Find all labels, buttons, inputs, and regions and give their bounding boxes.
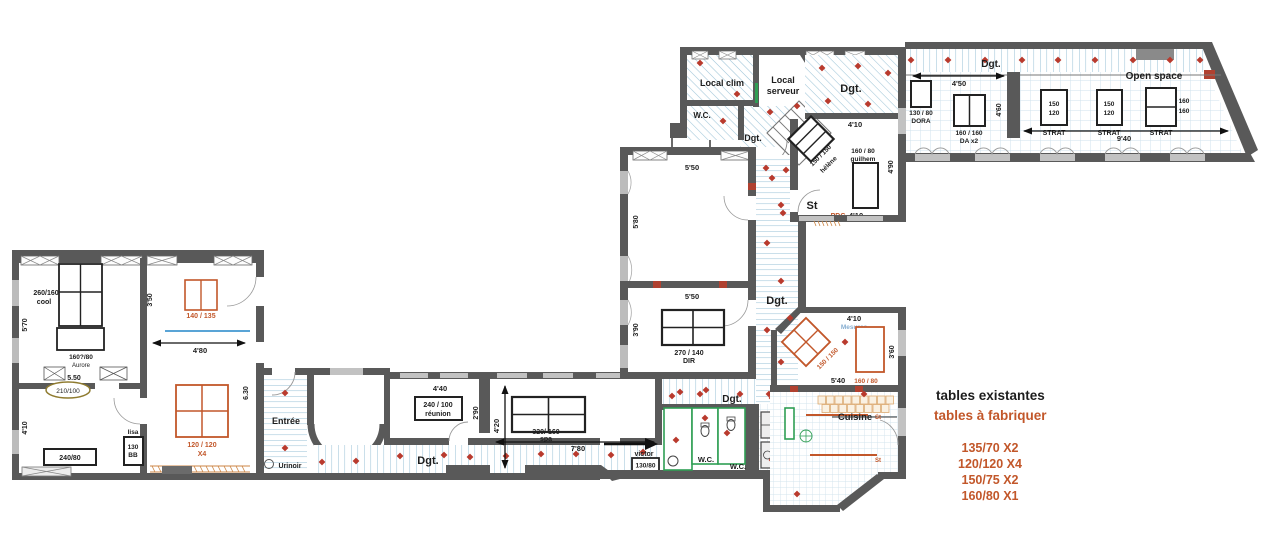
svg-text:tables existantes: tables existantes — [936, 388, 1045, 403]
svg-text:réunion: réunion — [425, 411, 451, 418]
svg-text:5.50: 5.50 — [67, 375, 81, 382]
svg-text:3'60: 3'60 — [889, 345, 896, 358]
svg-text:St: St — [807, 200, 818, 212]
svg-text:4'10: 4'10 — [847, 314, 861, 323]
svg-text:160: 160 — [1179, 108, 1190, 115]
svg-text:5'40: 5'40 — [831, 376, 845, 385]
svg-text:Dgt.: Dgt. — [840, 83, 861, 95]
svg-text:Dgt.: Dgt. — [417, 455, 438, 467]
svg-text:150: 150 — [1104, 101, 1115, 108]
svg-text:DIR: DIR — [683, 358, 695, 365]
svg-text:4'90: 4'90 — [888, 160, 895, 173]
svg-text:BB: BB — [128, 452, 138, 459]
svg-text:DORA: DORA — [911, 118, 930, 125]
svg-text:guilhem: guilhem — [851, 156, 876, 163]
svg-text:4'60: 4'60 — [996, 103, 1003, 116]
svg-text:5'70: 5'70 — [22, 318, 29, 331]
svg-text:5'50: 5'50 — [685, 163, 699, 172]
svg-text:160 / 80: 160 / 80 — [854, 378, 878, 385]
svg-text:St: St — [875, 458, 881, 464]
svg-text:Open space: Open space — [1126, 71, 1183, 82]
svg-text:210/100: 210/100 — [56, 388, 80, 395]
svg-text:160?/80: 160?/80 — [69, 354, 93, 361]
svg-text:3'90: 3'90 — [633, 323, 640, 336]
svg-text:Dgt.: Dgt. — [981, 59, 1001, 70]
svg-text:160: 160 — [1179, 98, 1190, 105]
svg-text:4'40: 4'40 — [433, 384, 447, 393]
svg-text:160/80 X1: 160/80 X1 — [962, 489, 1019, 503]
svg-text:serveur: serveur — [767, 86, 800, 96]
svg-text:160 / 80: 160 / 80 — [851, 148, 875, 155]
svg-text:Local clim: Local clim — [700, 78, 744, 88]
svg-text:4'20: 4'20 — [492, 419, 501, 433]
svg-text:5'50: 5'50 — [685, 292, 699, 301]
svg-text:Urinoir: Urinoir — [279, 463, 302, 470]
svg-text:240/80: 240/80 — [59, 455, 81, 462]
svg-text:120: 120 — [1049, 110, 1060, 117]
svg-text:5'80: 5'80 — [633, 215, 640, 228]
svg-text:DA x2: DA x2 — [960, 138, 979, 145]
svg-text:victor: victor — [634, 451, 653, 458]
svg-text:Local: Local — [771, 75, 795, 85]
svg-text:240 / 100: 240 / 100 — [423, 402, 452, 409]
svg-text:130/80: 130/80 — [636, 463, 656, 470]
svg-text:150: 150 — [1049, 101, 1060, 108]
svg-text:9'40: 9'40 — [1117, 134, 1131, 143]
svg-text:4'80: 4'80 — [193, 346, 207, 355]
svg-text:Dgt.: Dgt. — [766, 295, 787, 307]
svg-text:120 / 120: 120 / 120 — [187, 442, 216, 449]
svg-text:X4: X4 — [198, 451, 207, 458]
svg-text:3'50: 3'50 — [147, 293, 154, 306]
svg-text:W.C.: W.C. — [730, 462, 746, 471]
svg-text:6.30: 6.30 — [243, 386, 250, 400]
svg-text:2'90: 2'90 — [473, 406, 480, 419]
svg-text:320/ 160: 320/ 160 — [532, 429, 559, 436]
svg-text:4'10: 4'10 — [848, 120, 862, 129]
svg-text:140 / 135: 140 / 135 — [186, 313, 215, 320]
svg-text:Aurore: Aurore — [72, 363, 91, 369]
svg-text:W.C.: W.C. — [698, 455, 714, 464]
svg-text:130: 130 — [128, 444, 139, 451]
svg-text:150/75 X2: 150/75 X2 — [962, 473, 1019, 487]
svg-text:Entrée: Entrée — [272, 416, 300, 426]
svg-text:130 / 80: 130 / 80 — [909, 110, 933, 117]
svg-text:160 / 160: 160 / 160 — [955, 130, 982, 137]
svg-text:120/120 X4: 120/120 X4 — [958, 457, 1022, 471]
svg-text:270 / 140: 270 / 140 — [674, 350, 703, 357]
svg-text:tables à fabriquer: tables à fabriquer — [934, 408, 1047, 423]
svg-text:260/160: 260/160 — [33, 290, 58, 297]
svg-text:135/70 X2: 135/70 X2 — [962, 441, 1019, 455]
svg-text:Dgt.: Dgt. — [744, 133, 762, 143]
svg-text:lisa: lisa — [128, 429, 139, 436]
svg-text:cool: cool — [37, 299, 51, 306]
svg-text:7'80: 7'80 — [571, 444, 585, 453]
svg-text:4'50: 4'50 — [952, 79, 966, 88]
svg-text:W.C.: W.C. — [693, 111, 710, 120]
svg-text:120: 120 — [1104, 110, 1115, 117]
svg-text:4'10: 4'10 — [22, 421, 29, 434]
